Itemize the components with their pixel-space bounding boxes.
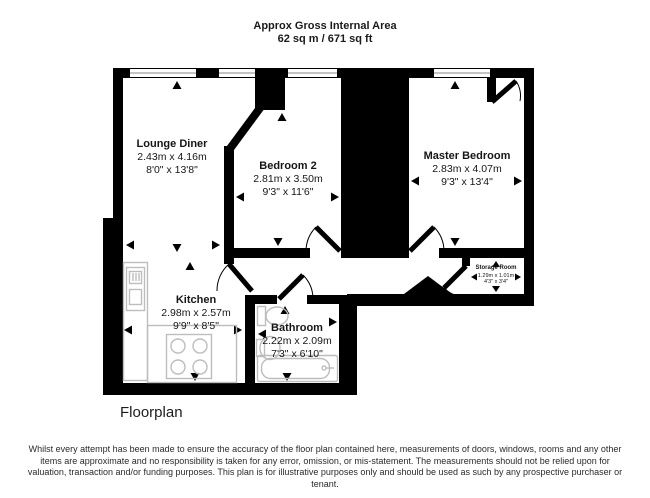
room-metric-dims: 2.98m x 2.57m [126, 307, 266, 320]
arrow-up [278, 113, 287, 121]
room-metric-dims: 2.22m x 2.09m [227, 335, 367, 348]
arrow-down [492, 286, 500, 292]
arrow-down [451, 238, 460, 246]
closet-door [492, 81, 520, 102]
room-name: Storage Room [456, 265, 536, 273]
floorplan-caption: Floorplan [120, 404, 183, 421]
master-bedroom-door [410, 227, 444, 251]
arrow-up [173, 81, 182, 89]
room-imperial-dims: 4'3" x 3'4" [456, 279, 536, 286]
arrow-down [283, 373, 292, 381]
room-name: Bathroom [227, 322, 367, 335]
windows [130, 69, 490, 77]
room-name: Kitchen [126, 294, 266, 307]
room-label-bedroom-2: Bedroom 2 2.81m x 3.50m 9'3" x 11'6" [218, 160, 358, 199]
bedroom2-door [306, 227, 340, 251]
floorplan-page: Approx Gross Internal Area 62 sq m / 671… [0, 0, 650, 498]
arrow-down [274, 238, 283, 246]
kitchen-door [217, 264, 252, 291]
window [434, 69, 490, 77]
arrow-left [126, 241, 134, 250]
room-name: Bedroom 2 [218, 160, 358, 173]
room-imperial-dims: 9'3" x 11'6" [218, 186, 358, 199]
room-label-master-bedroom: Master Bedroom 2.83m x 4.07m 9'3" x 13'4… [397, 150, 537, 189]
room-metric-dims: 2.81m x 3.50m [218, 173, 358, 186]
arrow-right [212, 241, 220, 250]
floorplan-drawing [0, 0, 650, 498]
room-metric-dims: 2.83m x 4.07m [397, 163, 537, 176]
room-name: Master Bedroom [397, 150, 537, 163]
disclaimer-text: Whilst every attempt has been made to en… [25, 444, 625, 490]
room-imperial-dims: 9'3" x 13'4" [397, 176, 537, 189]
room-label-bathroom: Bathroom 2.22m x 2.09m 7'3" x 6'10" [227, 322, 367, 361]
window [130, 69, 196, 77]
arrow-up [186, 262, 195, 270]
room-name: Lounge Diner [102, 138, 242, 151]
arrow-down [173, 244, 182, 252]
room-imperial-dims: 7'3" x 6'10" [227, 348, 367, 361]
window [288, 69, 337, 77]
kitchen-hob [167, 335, 212, 379]
room-label-storage-room: Storage Room 1.29m x 1.01m 4'3" x 3'4" [456, 265, 536, 286]
arrow-up [451, 81, 460, 89]
window [219, 69, 255, 77]
